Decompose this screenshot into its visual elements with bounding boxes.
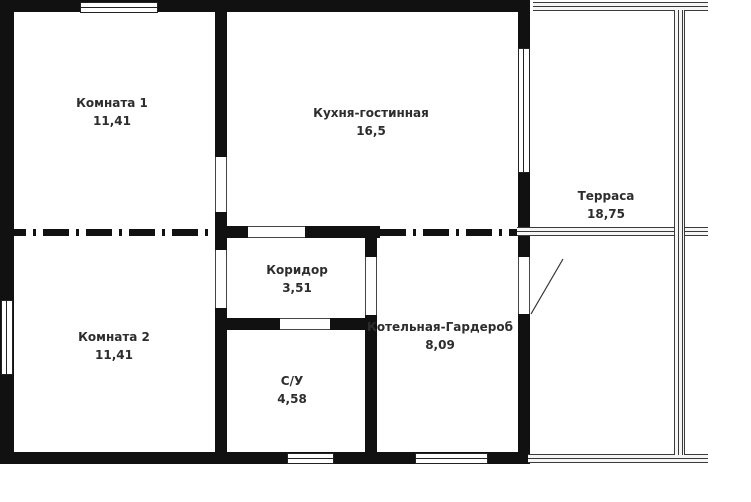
- room-name: Терраса: [578, 187, 635, 205]
- window-boiler-bottom: [415, 453, 488, 464]
- room-label-kitchen: Кухня-гостинная 16,5: [313, 104, 429, 140]
- room-label-room2: Комната 2 11,41: [78, 328, 150, 364]
- room-area: 11,41: [76, 112, 148, 130]
- room-name: Коридор: [266, 261, 328, 279]
- room-name: Комната 2: [78, 328, 150, 346]
- room-label-room1: Комната 1 11,41: [76, 94, 148, 130]
- window-room2-left: [1, 300, 13, 375]
- room-name: С/У: [277, 372, 307, 390]
- room-label-terrace: Терраса 18,75: [578, 187, 635, 223]
- room-label-corridor: Коридор 3,51: [266, 261, 328, 297]
- room-area: 11,41: [78, 346, 150, 364]
- door-kitchen-corridor: [248, 226, 305, 238]
- room-area: 8,09: [367, 336, 513, 354]
- wall-interior-vertical-main: [215, 12, 227, 452]
- railing-terrace-bottom: [528, 454, 708, 463]
- window-bathroom-bottom: [287, 453, 334, 464]
- door-room1-kitchen: [215, 157, 227, 212]
- floor-plan: Комната 1 11,41 Кухня-гостинная 16,5 Тер…: [0, 0, 751, 502]
- room-area: 16,5: [313, 122, 429, 140]
- railing-terrace-right: [674, 10, 685, 455]
- room-label-boiler-wardrobe: Котельная-Гардероб 8,09: [367, 318, 513, 354]
- door-corridor-bathroom: [280, 318, 330, 330]
- room-area: 3,51: [266, 279, 328, 297]
- room-area: 4,58: [277, 390, 307, 408]
- room-area: 18,75: [578, 205, 635, 223]
- room-name: Кухня-гостинная: [313, 104, 429, 122]
- door-boiler-terrace: [518, 257, 530, 314]
- window-kitchen-right: [518, 48, 530, 173]
- room-name: Котельная-Гардероб: [367, 318, 513, 336]
- door-room2-corridor: [215, 250, 227, 308]
- window-room1-top: [80, 2, 158, 13]
- room-name: Комната 1: [76, 94, 148, 112]
- dash-wall-boiler-divider: [380, 229, 518, 236]
- room-label-bathroom: С/У 4,58: [277, 372, 307, 408]
- door-corridor-boiler: [365, 257, 377, 315]
- dash-wall-rooms-divider: [0, 229, 215, 236]
